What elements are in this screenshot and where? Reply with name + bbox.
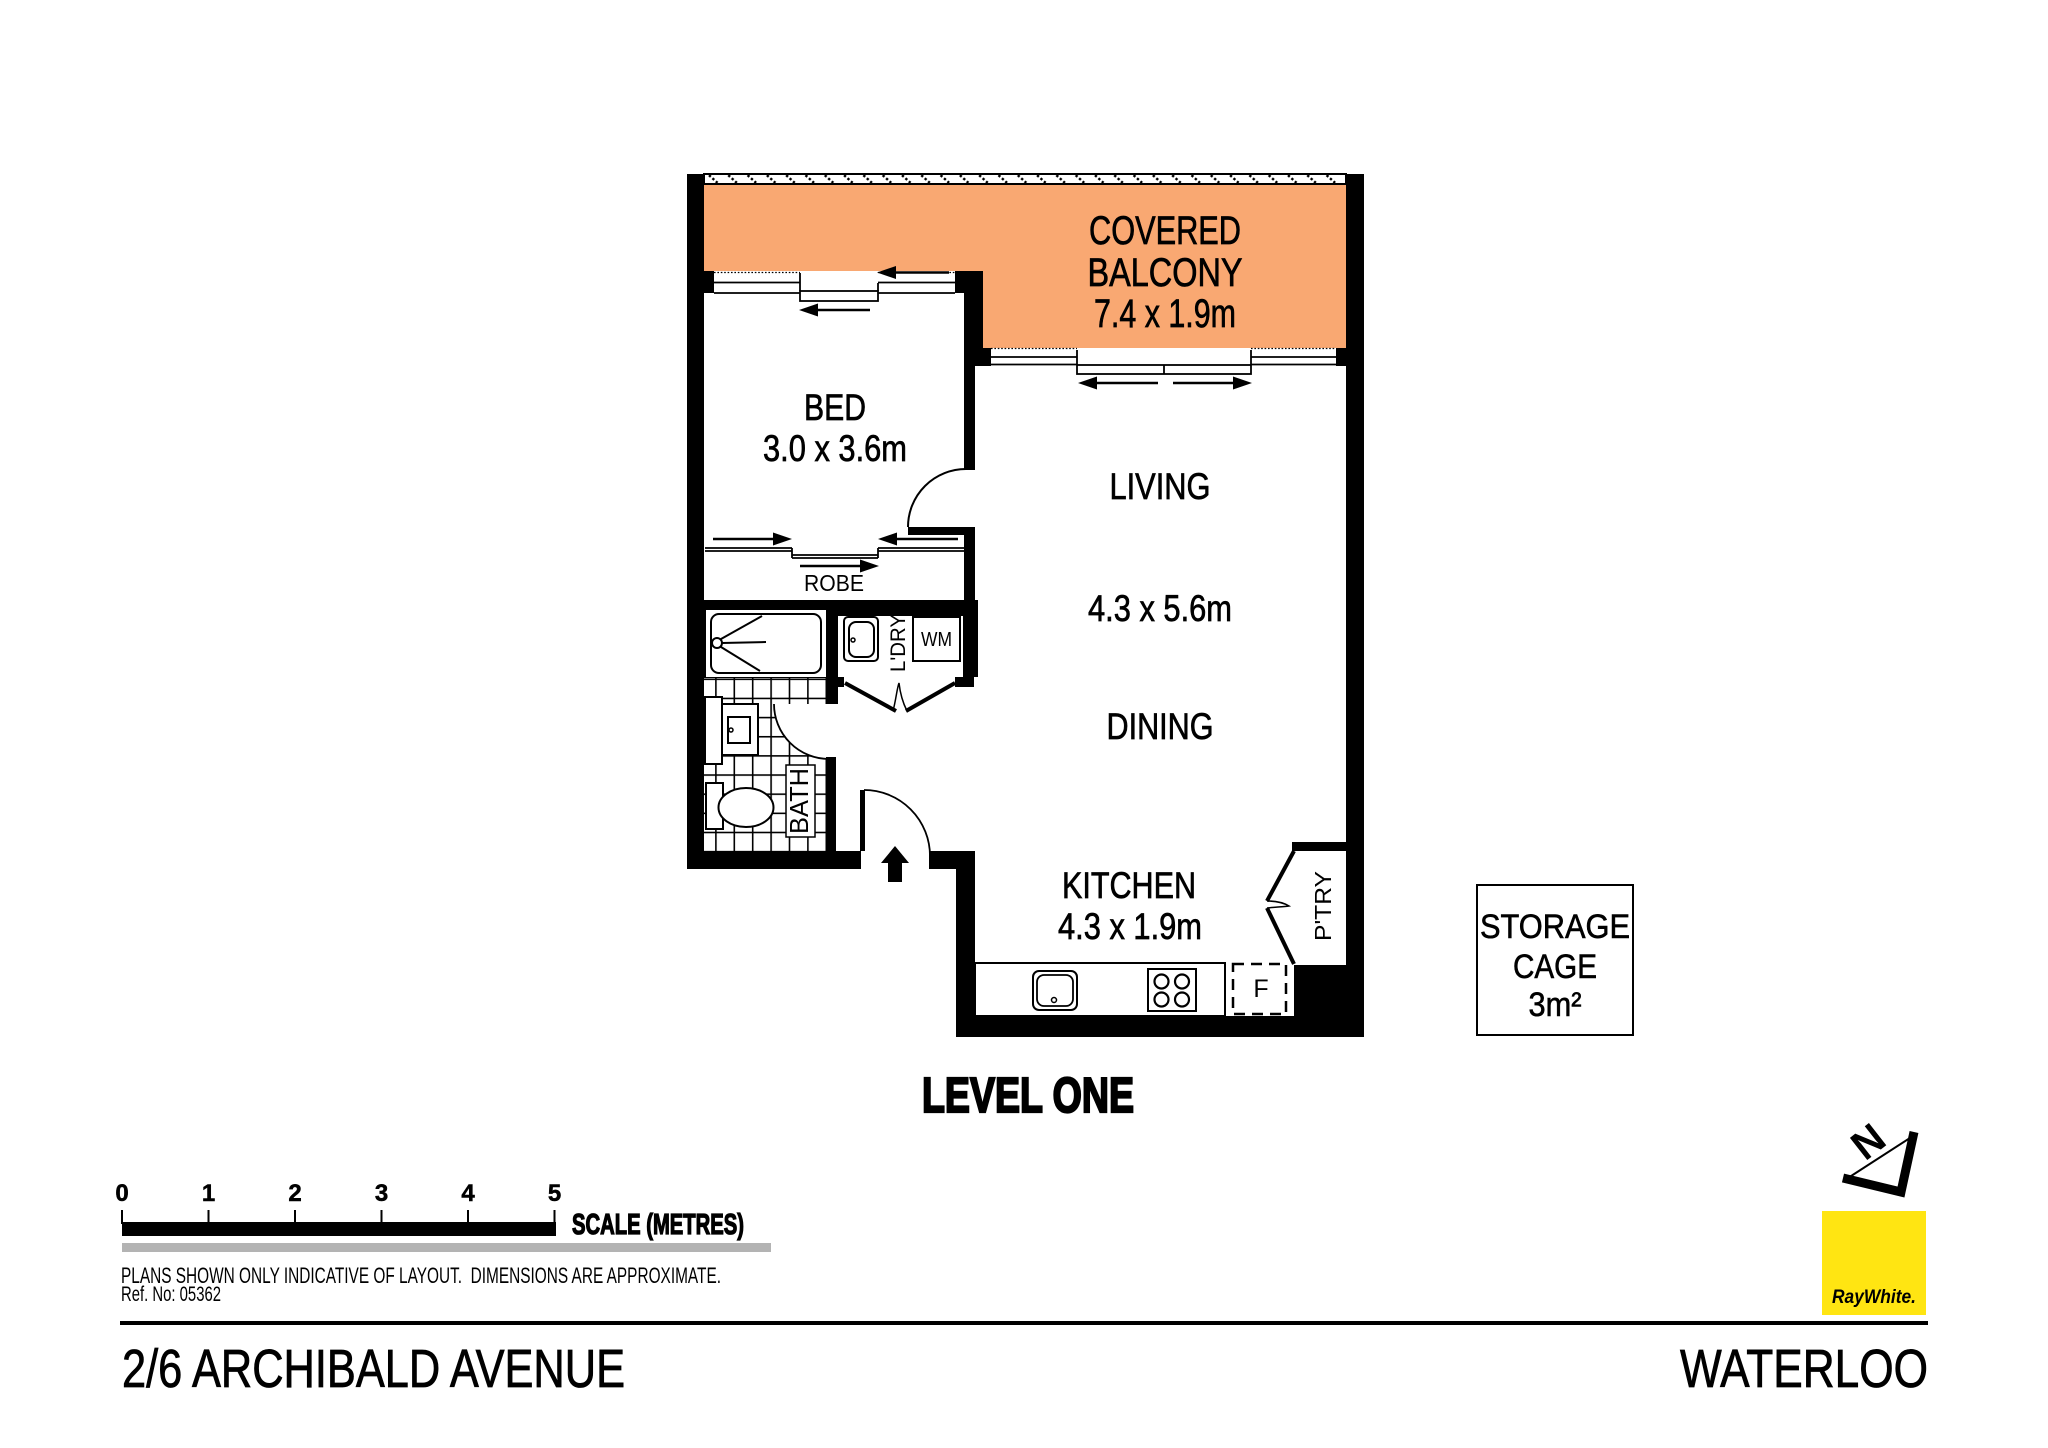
svg-text:RayWhite.: RayWhite. [1832,1287,1916,1308]
svg-text:5: 5 [548,1180,561,1207]
svg-text:KITCHEN: KITCHEN [1062,865,1196,906]
svg-text:DINING: DINING [1107,706,1214,747]
svg-text:P'TRY: P'TRY [1310,871,1336,941]
svg-text:STORAGE: STORAGE [1480,908,1630,946]
svg-text:SCALE (METRES): SCALE (METRES) [572,1209,744,1241]
svg-text:BALCONY: BALCONY [1088,251,1243,295]
svg-text:3: 3 [375,1180,388,1207]
svg-text:4.3 x 5.6m: 4.3 x 5.6m [1088,588,1232,629]
svg-text:3.0 x 3.6m: 3.0 x 3.6m [763,428,907,469]
svg-text:4: 4 [461,1180,475,1207]
svg-text:2: 2 [288,1180,301,1207]
svg-text:4.3 x 1.9m: 4.3 x 1.9m [1058,906,1202,947]
svg-text:L'DRY: L'DRY [887,614,910,672]
svg-text:F: F [1253,975,1268,1003]
svg-text:WATERLOO: WATERLOO [1680,1339,1928,1399]
svg-text:7.4 x 1.9m: 7.4 x 1.9m [1094,292,1236,336]
svg-text:2/6 ARCHIBALD AVENUE: 2/6 ARCHIBALD AVENUE [122,1339,625,1399]
svg-text:COVERED: COVERED [1089,209,1241,253]
svg-text:BATH: BATH [784,768,814,834]
svg-text:3m²: 3m² [1529,986,1582,1024]
svg-text:WM: WM [921,629,952,651]
svg-text:ROBE: ROBE [804,570,864,596]
svg-text:LEVEL ONE: LEVEL ONE [922,1069,1134,1123]
svg-text:BED: BED [804,387,866,428]
svg-text:1: 1 [202,1180,215,1207]
svg-text:0: 0 [115,1180,128,1207]
svg-text:Ref. No: 05362: Ref. No: 05362 [121,1283,221,1306]
svg-text:CAGE: CAGE [1513,948,1597,986]
svg-text:LIVING: LIVING [1110,466,1211,507]
